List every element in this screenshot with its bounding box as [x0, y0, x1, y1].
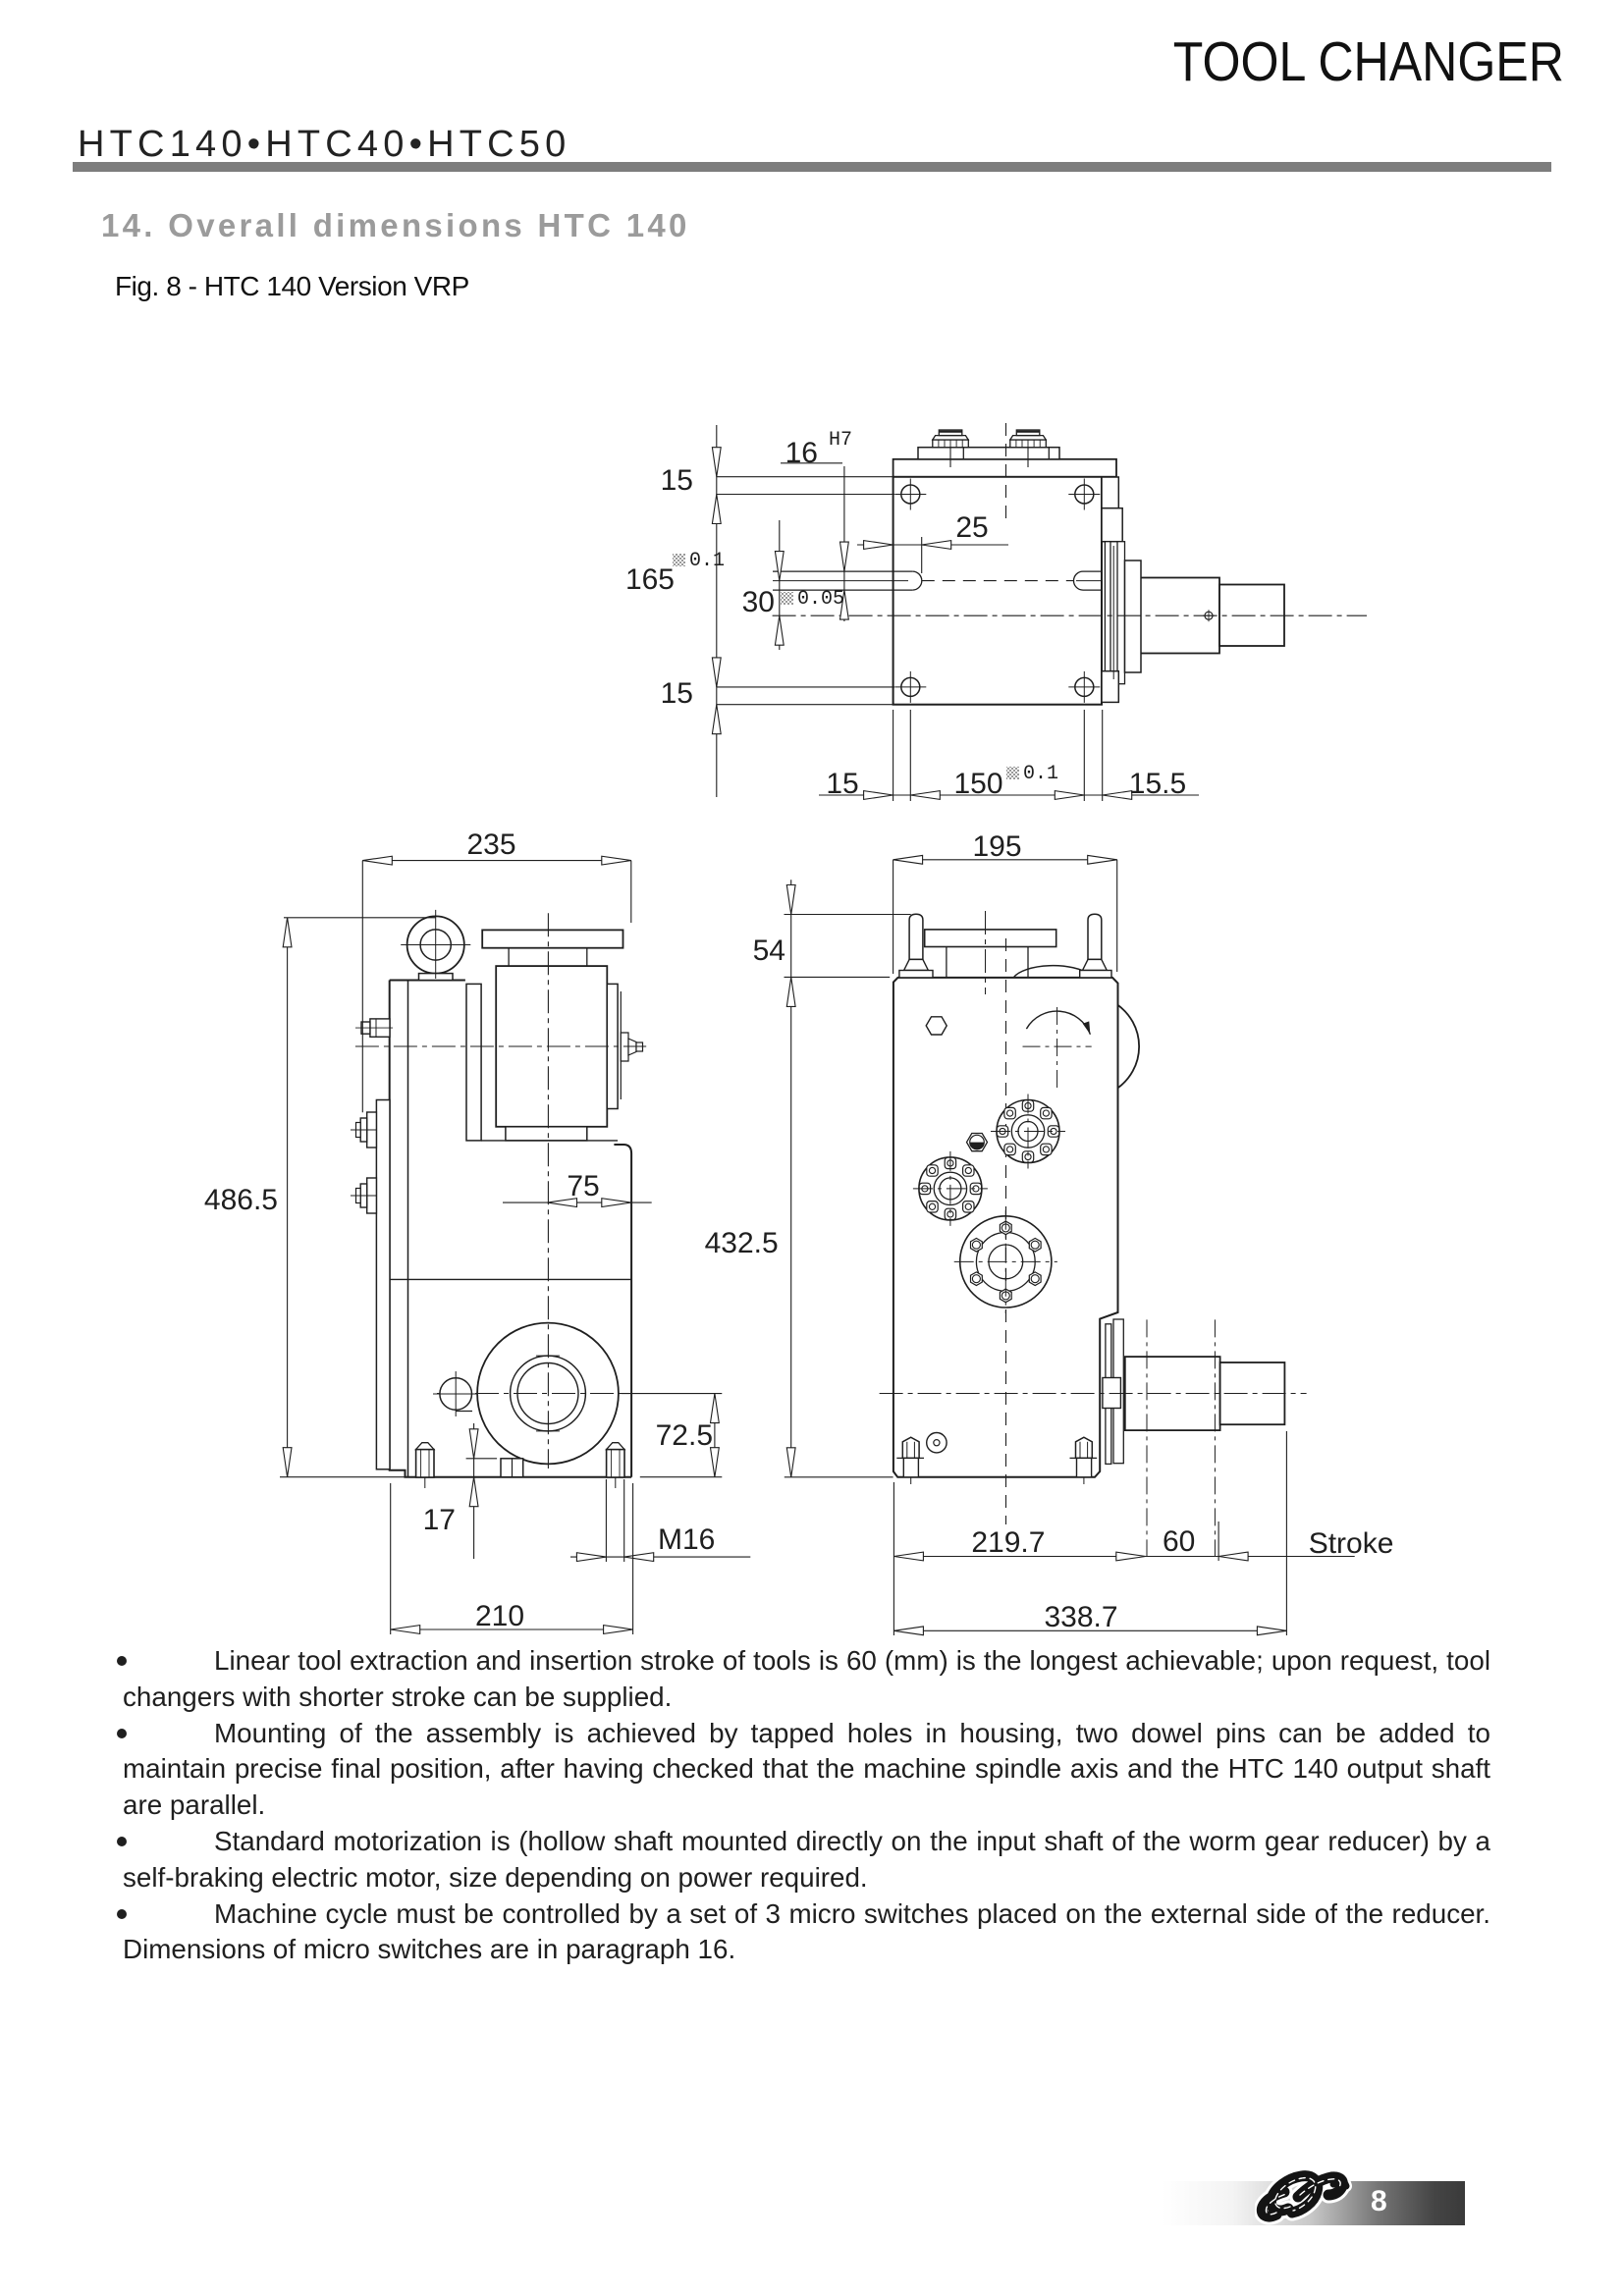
svg-text:195: 195: [972, 830, 1021, 863]
svg-text:25: 25: [955, 511, 988, 544]
svg-text:338.7: 338.7: [1044, 1601, 1117, 1633]
svg-text:M16: M16: [658, 1523, 715, 1556]
svg-text:165: 165: [625, 563, 675, 596]
svg-text:60: 60: [1163, 1525, 1195, 1558]
svg-text:0.05: 0.05: [797, 588, 844, 611]
svg-text:16: 16: [785, 437, 818, 469]
svg-text:0.1: 0.1: [689, 550, 725, 572]
svg-text:54: 54: [753, 934, 785, 967]
svg-text:219.7: 219.7: [971, 1526, 1045, 1559]
svg-text:150: 150: [953, 768, 1002, 800]
svg-text:72.5: 72.5: [656, 1419, 713, 1452]
svg-text:15.5: 15.5: [1129, 768, 1186, 800]
svg-text:15: 15: [661, 677, 693, 710]
svg-text:75: 75: [567, 1170, 599, 1202]
svg-text:0.1: 0.1: [1023, 763, 1058, 785]
svg-text:30: 30: [742, 586, 775, 618]
svg-text:H7: H7: [829, 429, 852, 452]
svg-text:15: 15: [826, 768, 858, 800]
svg-text:235: 235: [466, 828, 515, 861]
svg-text:Stroke: Stroke: [1309, 1527, 1394, 1560]
svg-text:210: 210: [475, 1600, 524, 1632]
svg-text:486.5: 486.5: [204, 1184, 278, 1216]
svg-text:17: 17: [423, 1504, 456, 1536]
svg-text:432.5: 432.5: [705, 1227, 779, 1259]
svg-text:15: 15: [661, 464, 693, 497]
